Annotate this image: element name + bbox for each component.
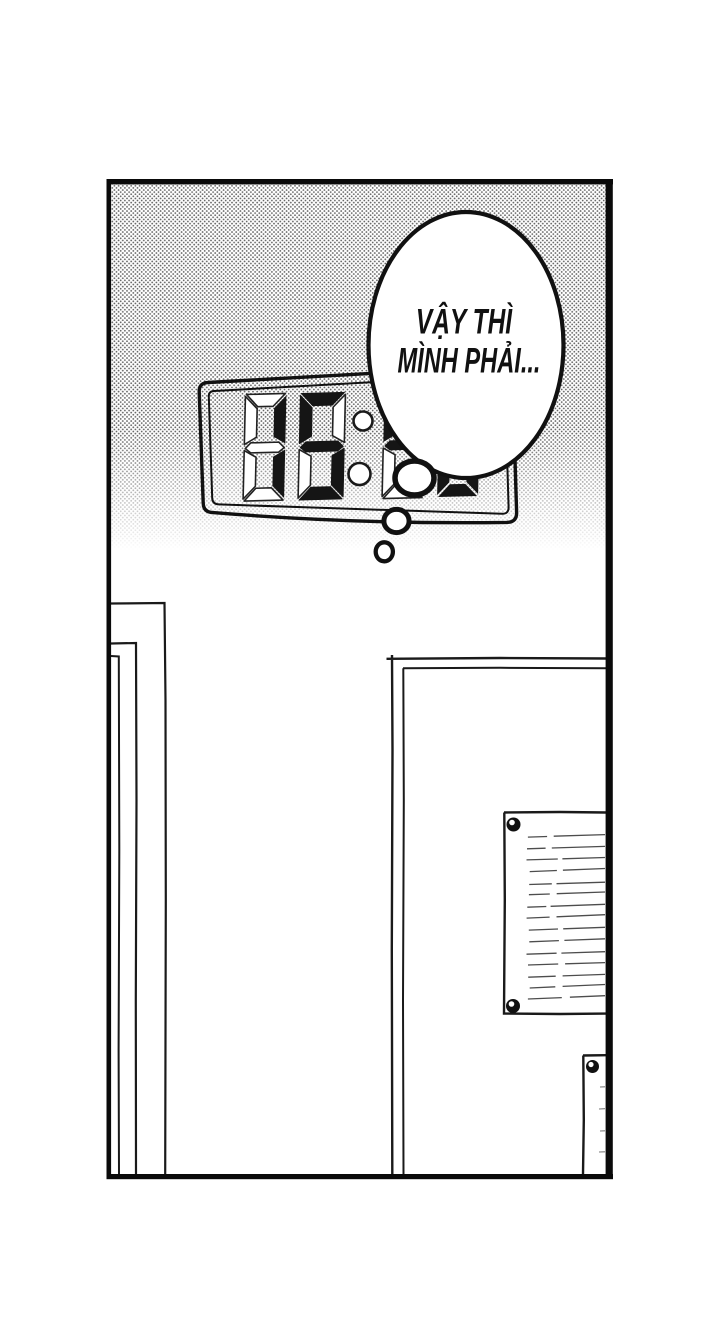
svg-text:VẬY THÌ: VẬY THÌ [416,302,513,341]
svg-text:MÌNH PHẢI...: MÌNH PHẢI... [398,341,541,381]
